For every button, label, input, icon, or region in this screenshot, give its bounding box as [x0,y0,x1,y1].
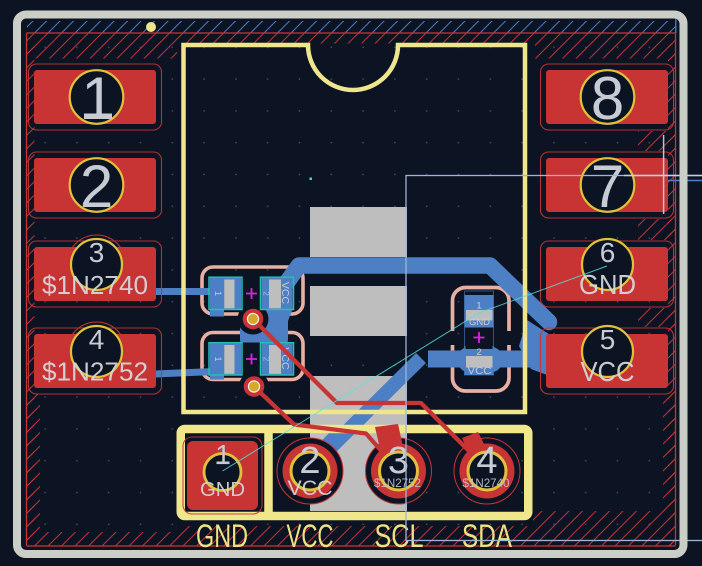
svg-text:VCC: VCC [288,477,333,500]
svg-text:1: 1 [213,291,223,296]
svg-text:GND: GND [196,518,248,554]
svg-text:VCC: VCC [279,282,291,305]
svg-text:2: 2 [80,153,113,220]
svg-text:1: 1 [215,439,231,470]
svg-text:$1N2740: $1N2740 [463,478,510,490]
svg-text:5: 5 [600,324,616,355]
svg-text:8: 8 [591,65,624,132]
svg-text:$1N2752: $1N2752 [42,357,148,387]
svg-text:1: 1 [81,65,114,132]
svg-text:SCL: SCL [375,518,424,554]
svg-text:6: 6 [600,237,616,268]
svg-text:SDA: SDA [462,518,512,554]
svg-text:2: 2 [262,291,271,296]
svg-text:GND: GND [200,479,245,501]
svg-text:4: 4 [476,440,497,482]
svg-text:VCC: VCC [287,518,334,554]
svg-text:1: 1 [476,301,481,312]
svg-text:VCC: VCC [468,366,492,377]
svg-text:7: 7 [591,153,624,220]
svg-text:1: 1 [213,356,223,361]
svg-text:2: 2 [476,347,481,358]
svg-text:GND: GND [469,317,491,327]
svg-text:2: 2 [299,440,320,482]
svg-text:4: 4 [89,324,105,355]
svg-text:3: 3 [89,237,105,268]
svg-text:2: 2 [262,357,271,362]
svg-text:$1N2752: $1N2752 [374,478,421,490]
svg-text:$1N2740: $1N2740 [42,270,148,300]
svg-text:VCC: VCC [581,356,635,387]
